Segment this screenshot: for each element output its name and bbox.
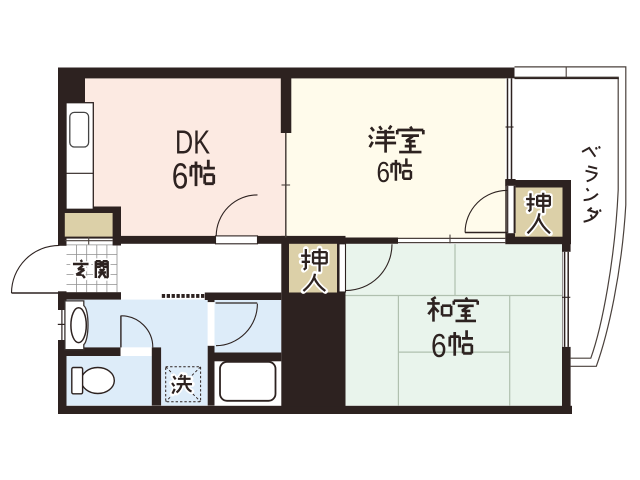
svg-text:6: 6 <box>431 327 447 364</box>
svg-text:6: 6 <box>172 156 189 197</box>
svg-text:6: 6 <box>377 157 391 189</box>
